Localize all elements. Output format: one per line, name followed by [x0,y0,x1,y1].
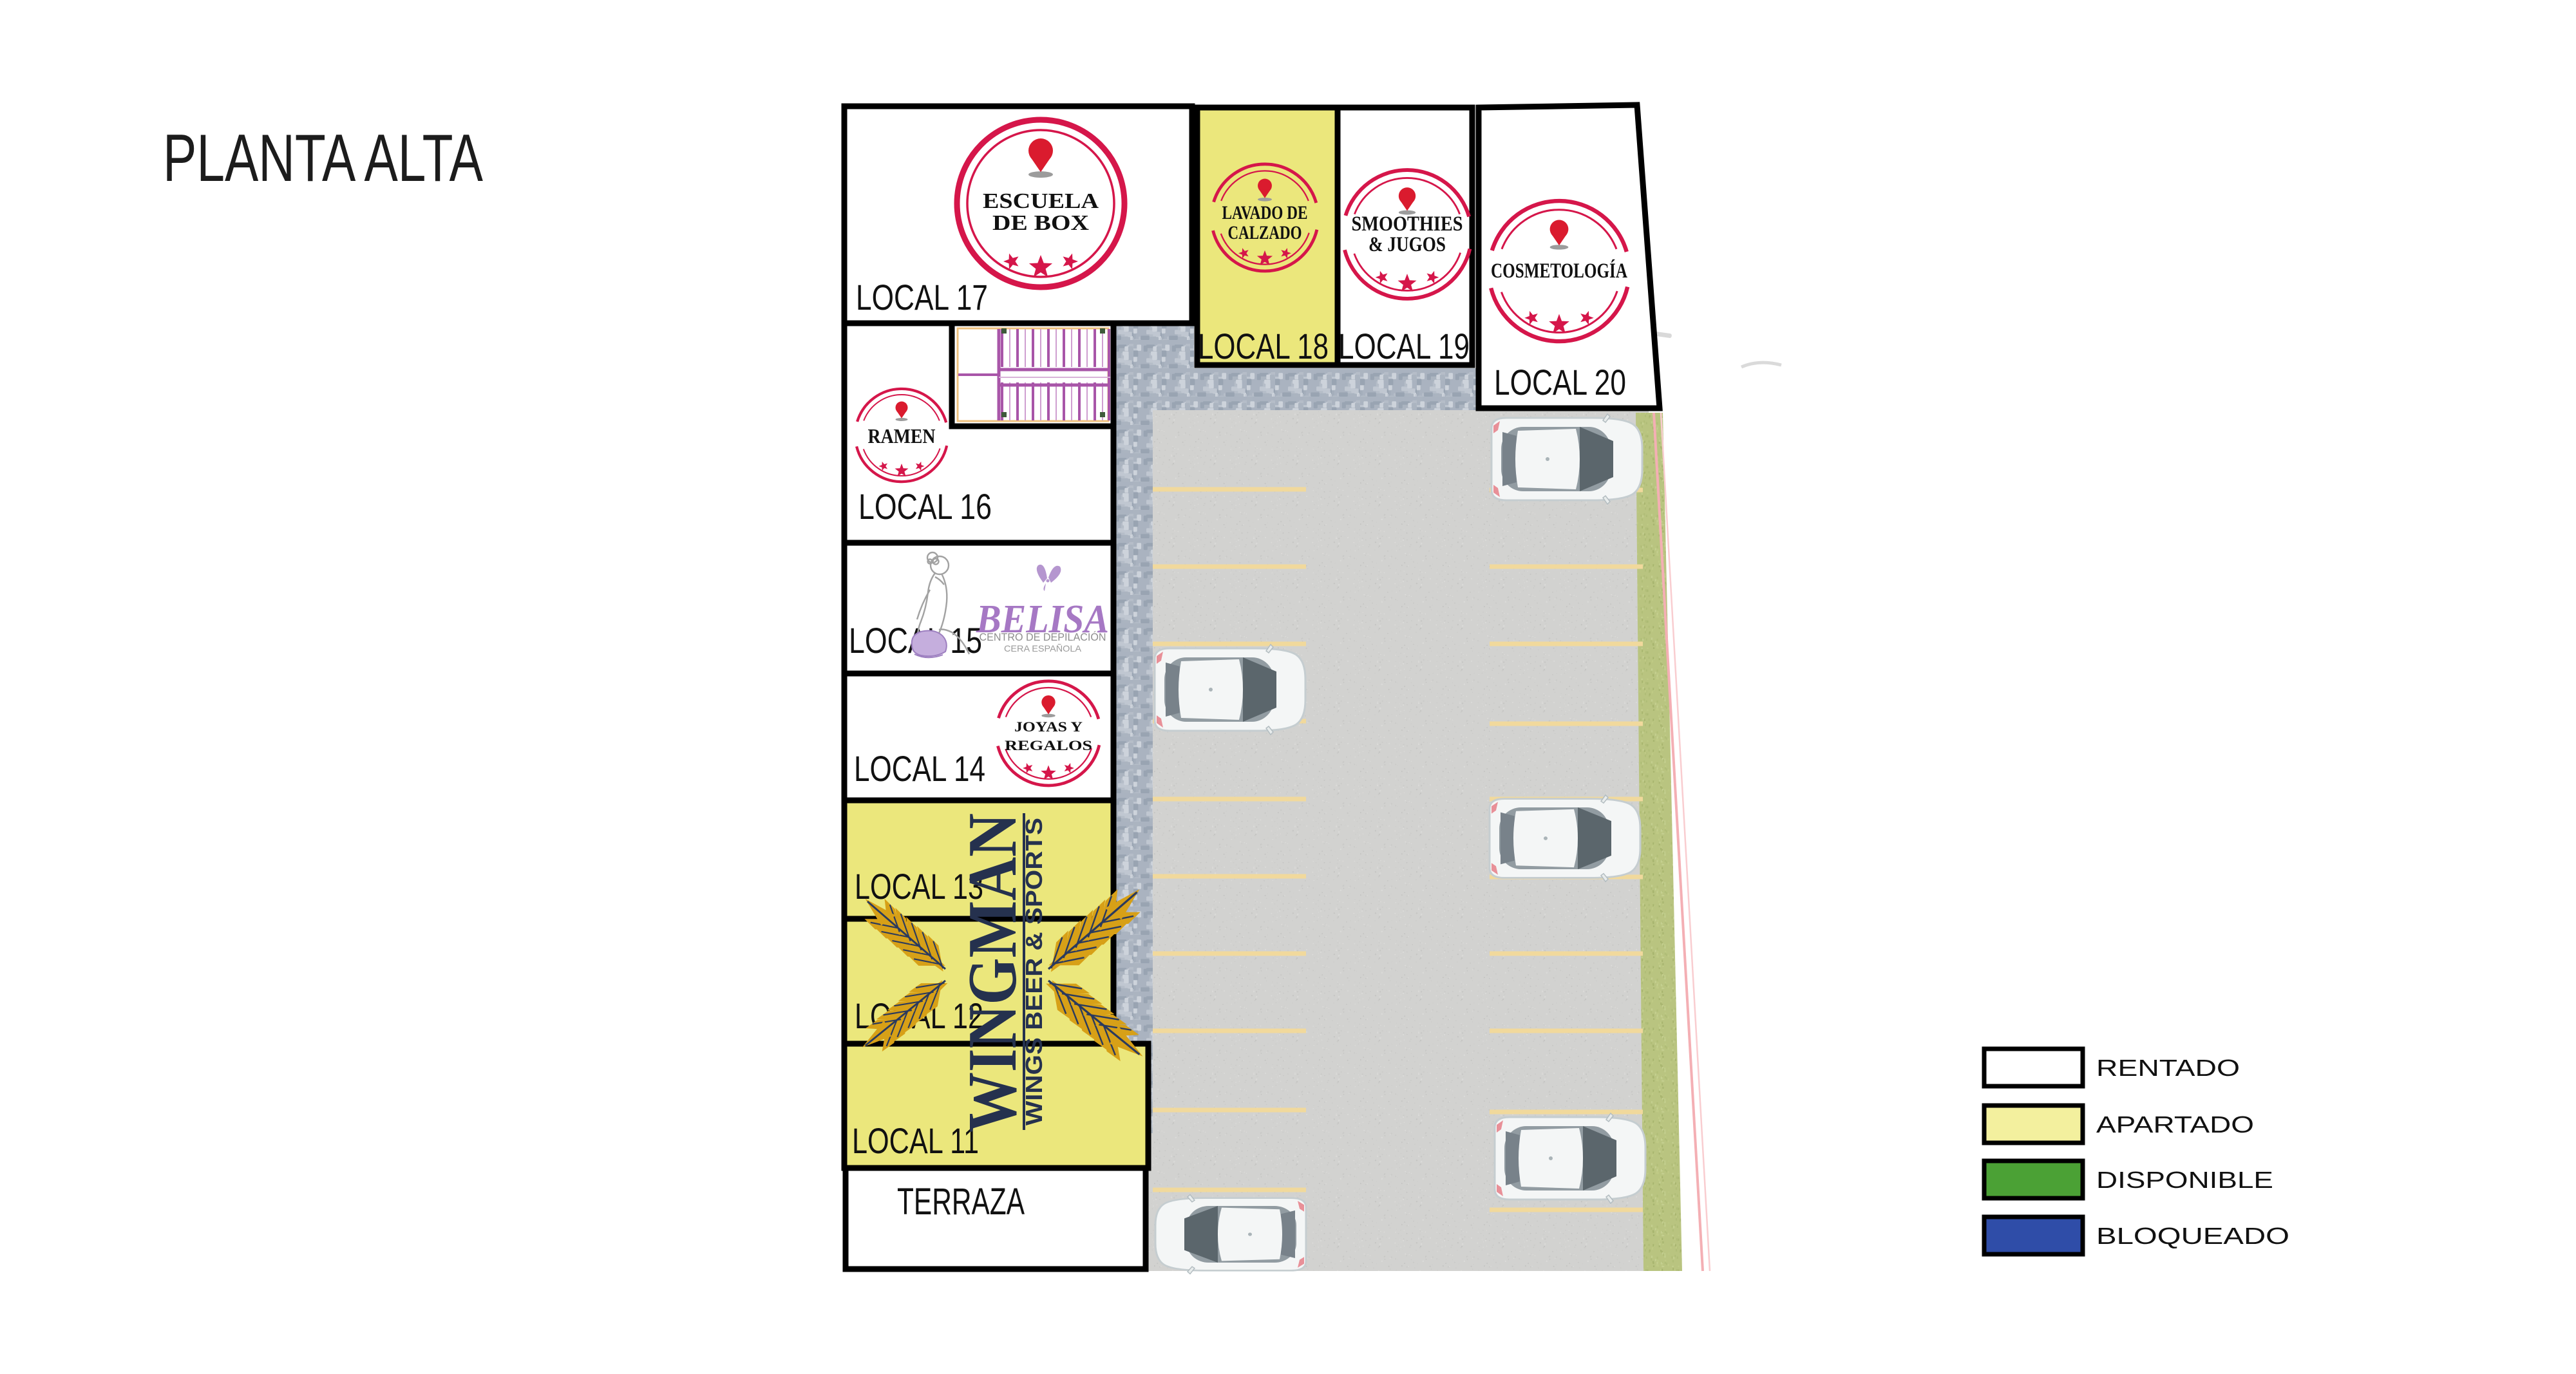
svg-text:COSMETOLOGÍA: COSMETOLOGÍA [1491,259,1627,283]
svg-text:ESCUELA: ESCUELA [983,189,1099,213]
svg-text:APARTADO: APARTADO [2096,1111,2254,1138]
svg-text:LOCAL 19: LOCAL 19 [1338,326,1470,366]
svg-text:RENTADO: RENTADO [2096,1055,2240,1081]
svg-text:LOCAL 18: LOCAL 18 [1198,326,1329,366]
svg-text:TERRAZA: TERRAZA [897,1181,1025,1223]
svg-text:LOCAL 14: LOCAL 14 [854,748,985,789]
svg-text:LOCAL 17: LOCAL 17 [856,277,988,317]
svg-text:LOCAL 16: LOCAL 16 [858,486,992,527]
svg-text:JOYAS Y: JOYAS Y [1014,719,1083,735]
svg-text:DE BOX: DE BOX [992,211,1090,235]
svg-text:DISPONIBLE: DISPONIBLE [2096,1167,2273,1193]
svg-text:PLANTA ALTA: PLANTA ALTA [163,121,483,196]
svg-text:CERA ESPAÑOLA: CERA ESPAÑOLA [1004,643,1082,654]
svg-text:WINGMAN: WINGMAN [954,813,1031,1133]
svg-text:CALZADO: CALZADO [1228,222,1302,243]
svg-text:LAVADO DE: LAVADO DE [1222,202,1308,223]
svg-text:BLOQUEADO: BLOQUEADO [2096,1223,2289,1249]
svg-text:SMOOTHIES: SMOOTHIES [1352,212,1463,236]
svg-text:CENTRO DE DEPILACIÓN: CENTRO DE DEPILACIÓN [980,631,1106,643]
svg-text:LOCAL 20: LOCAL 20 [1494,362,1626,402]
svg-text:REGALOS: REGALOS [1005,737,1092,753]
svg-text:& JUGOS: & JUGOS [1368,233,1446,256]
svg-text:RAMEN: RAMEN [868,424,936,447]
svg-text:WINGS BEER & SPORTS: WINGS BEER & SPORTS [1021,818,1047,1125]
